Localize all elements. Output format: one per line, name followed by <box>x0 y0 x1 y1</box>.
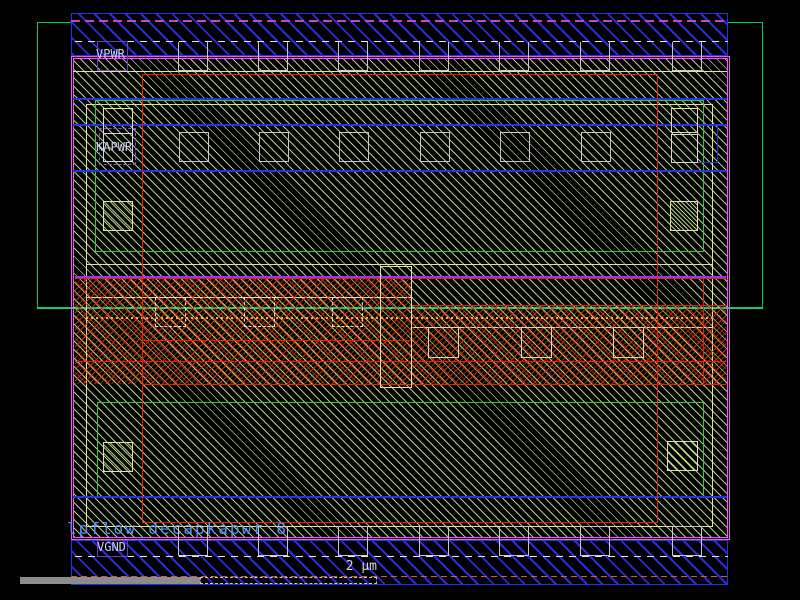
bottom-edge-contacts <box>672 526 702 556</box>
top-edge-contacts <box>672 42 702 71</box>
bottom-edge-contacts <box>258 526 288 556</box>
upper-row-contacts <box>259 132 289 162</box>
upper-row-contacts <box>500 132 530 162</box>
upper-row-contacts <box>179 132 209 162</box>
mid-left-contacts <box>244 297 275 327</box>
mid-left-contacts <box>155 297 186 327</box>
mid-right-contacts <box>521 327 552 358</box>
mid-right-contacts <box>428 327 459 358</box>
bottom-edge-contacts <box>338 526 368 556</box>
poly-step-box <box>380 266 412 388</box>
tap-square-lower-right <box>667 441 698 471</box>
bottom-edge-contacts <box>580 526 610 556</box>
poly-edge-e <box>142 384 726 385</box>
scale-bar-dashed <box>200 577 377 584</box>
poly-edge-f <box>703 278 704 384</box>
vpwr-label: VPWR <box>96 48 125 60</box>
scale-bar-solid <box>20 577 200 584</box>
bottom-rail-dashed-line <box>75 556 728 557</box>
top-edge-contacts <box>258 42 288 71</box>
tap-top-line <box>73 71 727 72</box>
bottom-edge-contacts <box>499 526 529 556</box>
abutment-boundary-dashed <box>71 20 728 22</box>
bottom-edge-contacts <box>178 526 208 556</box>
tap-square-upper-left <box>103 201 133 231</box>
vgnd-label: VGND <box>97 541 126 553</box>
tap-square-lower-left <box>103 442 133 472</box>
poly-edge-c <box>142 340 412 341</box>
right-tap-box <box>671 108 698 133</box>
tap-square-upper-right <box>670 201 698 231</box>
poly-edge-b <box>412 305 726 306</box>
top-edge-contacts <box>178 42 208 71</box>
top-edge-contacts <box>499 42 529 71</box>
scale-label: 2 µm <box>280 560 377 573</box>
upper-row-contacts <box>581 132 611 162</box>
top-edge-contacts <box>580 42 610 71</box>
layout-canvas[interactable]: KAPWR VPWR VGND lpflow_decapkapwr_8 2 µm <box>0 0 800 600</box>
mid-right-contacts <box>613 327 644 358</box>
bottom-edge-contacts <box>419 526 449 556</box>
top-rail-dashed-line <box>75 41 728 42</box>
upper-row-contacts <box>339 132 369 162</box>
kapwr-label: KAPWR <box>96 141 132 153</box>
mid-left-contacts <box>332 297 363 327</box>
top-edge-contacts <box>419 42 449 71</box>
right-contact-box <box>671 134 698 163</box>
top-edge-contacts <box>338 42 368 71</box>
upper-row-contacts <box>420 132 450 162</box>
